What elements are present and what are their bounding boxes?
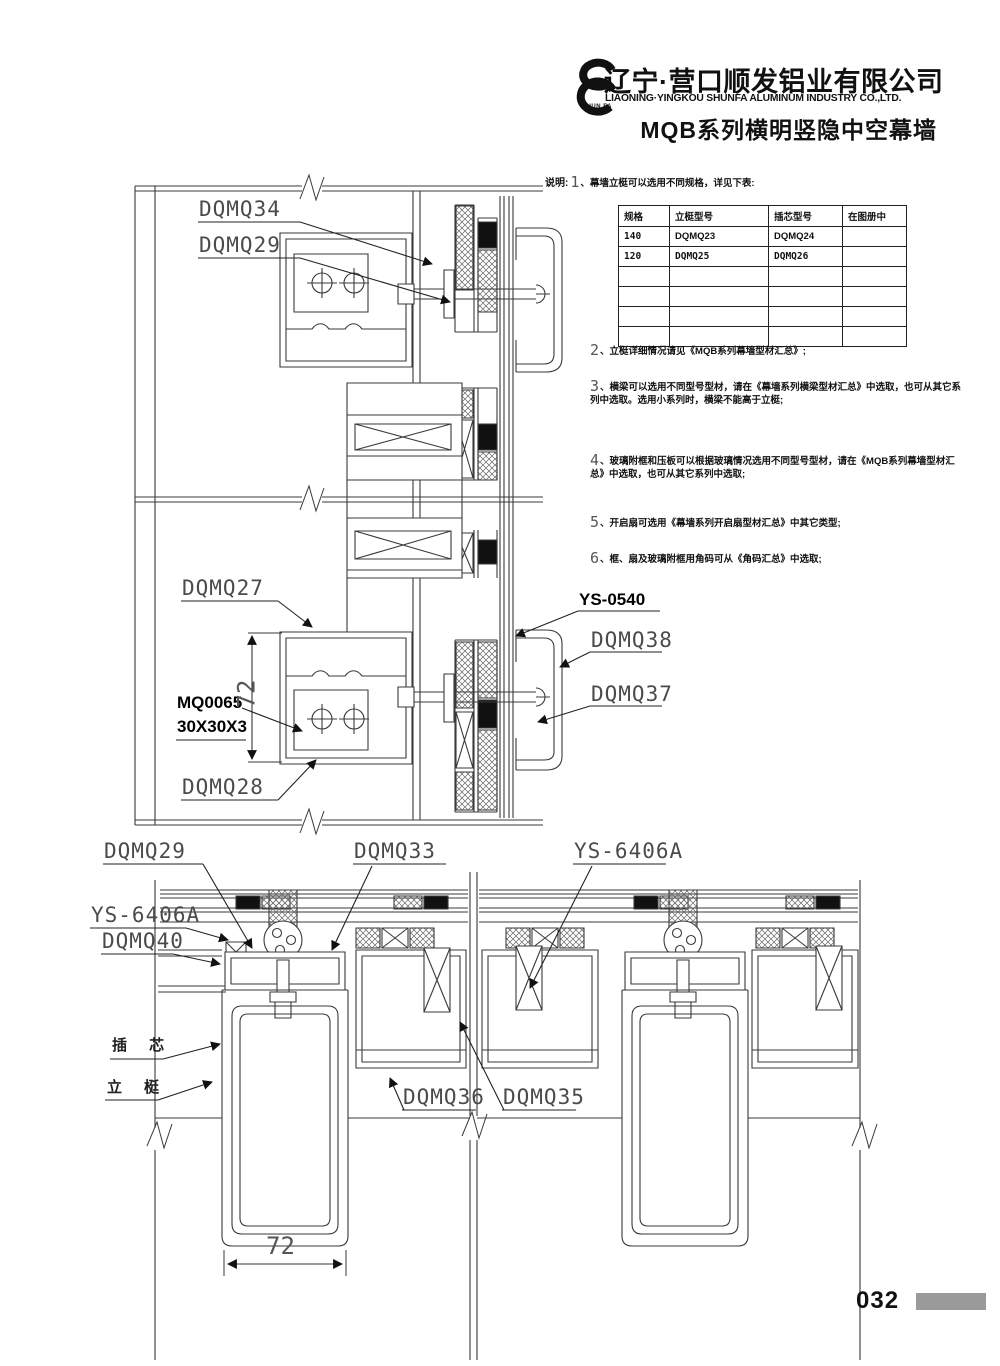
part-label-dqmq38: DQMQ38 <box>591 630 673 651</box>
part-label-dqmq37: DQMQ37 <box>591 684 673 705</box>
part-label-dqmq29-bottom: DQMQ29 <box>104 841 186 862</box>
part-label-dqmq34: DQMQ34 <box>199 199 281 220</box>
cell-mullion <box>670 287 769 307</box>
col-header-mullion: 立梃型号 <box>670 206 769 227</box>
catalog-page: SHUN FA 辽宁·营口顺发铝业有限公司 LIAONING·YINGKOU S… <box>0 0 1000 1366</box>
note-2: 2、立梃详细情况请见《MQB系列幕墙型材汇总》; <box>590 344 960 358</box>
company-name-en: LIAONING·YINGKOU SHUNFA ALUMINUM INDUSTR… <box>605 93 940 104</box>
cell-spec <box>619 307 670 327</box>
note-3: 3、横梁可以选用不同型号型材，请在《幕墙系列横梁型材汇总》中选取，也可从其它系列… <box>590 380 962 407</box>
table-header-row: 规格 立梃型号 插芯型号 在图册中 <box>619 206 907 227</box>
cell-atlas <box>843 227 907 247</box>
note-4: 4、玻璃附框和压板可以根据玻璃情况选用不同型号型材，请在《MQB系列幕墙型材汇总… <box>590 454 968 481</box>
part-label-ys6406a-left: YS-6406A <box>91 905 200 926</box>
notes-intro-label: 说明: <box>545 178 568 189</box>
note-6-text: 、框、扇及玻璃附框用角码可从《角码汇总》中选取; <box>600 554 822 565</box>
cell-spec <box>619 267 670 287</box>
cell-mullion <box>670 267 769 287</box>
plan-drawing-bottom <box>147 872 877 1360</box>
note-2-text: 、立梃详细情况请见《MQB系列幕墙型材汇总》; <box>600 346 806 357</box>
cell-mullion <box>670 307 769 327</box>
cell-core <box>769 287 843 307</box>
cell-atlas <box>843 247 907 267</box>
cell-spec <box>619 287 670 307</box>
note-2-number: 2 <box>590 341 599 359</box>
part-label-mullion: 立 梃 <box>107 1080 168 1095</box>
table-row: 140 DQMQ23 DQMQ24 <box>619 227 907 247</box>
part-label-dqmq33: DQMQ33 <box>354 841 436 862</box>
page-title: MQB系列横明竖隐中空幕墙 <box>450 111 937 145</box>
cell-spec: 140 <box>619 227 670 247</box>
cell-atlas <box>843 267 907 287</box>
dimension-mullion-depth: 72 <box>234 680 258 709</box>
part-label-dqmq28: DQMQ28 <box>182 777 264 798</box>
cell-core: DQMQ26 <box>769 247 843 267</box>
table-row <box>619 287 907 307</box>
note-5-text: 、开启扇可选用《幕墙系列开启扇型材汇总》中其它类型; <box>600 518 841 529</box>
cell-mullion: DQMQ23 <box>670 227 769 247</box>
part-label-ys0540: YS-0540 <box>579 591 645 608</box>
cell-core <box>769 307 843 327</box>
table-row: 120 DQMQ25 DQMQ26 <box>619 247 907 267</box>
part-label-insert-core: 插 芯 <box>112 1038 173 1053</box>
mullion-spec-table: 规格 立梃型号 插芯型号 在图册中 140 DQMQ23 DQMQ24 120 … <box>618 205 907 347</box>
part-label-dqmq36: DQMQ36 <box>403 1087 485 1108</box>
leader-lines <box>90 222 666 1110</box>
cell-mullion: DQMQ25 <box>670 247 769 267</box>
note-3-number: 3 <box>590 377 599 395</box>
col-header-core: 插芯型号 <box>769 206 843 227</box>
table-row <box>619 307 907 327</box>
note-1-number: 1 <box>570 173 579 191</box>
note-4-text: 、玻璃附框和压板可以根据玻璃情况选用不同型号型材，请在《MQB系列幕墙型材汇总》… <box>590 456 955 480</box>
note-5-number: 5 <box>590 513 599 531</box>
part-label-dqmq29-top: DQMQ29 <box>199 235 281 256</box>
note-6: 6、框、扇及玻璃附框用角码可从《角码汇总》中选取; <box>590 552 968 566</box>
part-label-dqmq40: DQMQ40 <box>102 931 184 952</box>
page-number: 032 <box>856 1287 899 1315</box>
part-label-dqmq27: DQMQ27 <box>182 578 264 599</box>
part-label-dqmq35: DQMQ35 <box>503 1087 585 1108</box>
note-5: 5、开启扇可选用《幕墙系列开启扇型材汇总》中其它类型; <box>590 516 968 530</box>
cell-spec: 120 <box>619 247 670 267</box>
logo-text: SHUN FA <box>574 104 620 110</box>
part-label-mq0065-size: 30X30X3 <box>177 718 247 735</box>
footer-bar <box>916 1293 986 1310</box>
cell-atlas <box>843 287 907 307</box>
note-4-number: 4 <box>590 451 599 469</box>
note-1-text: 、幕墙立梃可以选用不同规格，详见下表: <box>580 178 754 189</box>
cell-atlas <box>843 307 907 327</box>
col-header-atlas: 在图册中 <box>843 206 907 227</box>
note-1: 说明:1、幕墙立梃可以选用不同规格，详见下表: <box>545 176 960 190</box>
note-6-number: 6 <box>590 549 599 567</box>
cell-core <box>769 267 843 287</box>
note-3-text: 、横梁可以选用不同型号型材，请在《幕墙系列横梁型材汇总》中选取，也可从其它系列中… <box>590 382 961 406</box>
cell-core: DQMQ24 <box>769 227 843 247</box>
part-label-ys6406a-top: YS-6406A <box>574 841 683 862</box>
table-row <box>619 267 907 287</box>
dimension-mullion-width: 72 <box>266 1234 295 1258</box>
col-header-spec: 规格 <box>619 206 670 227</box>
